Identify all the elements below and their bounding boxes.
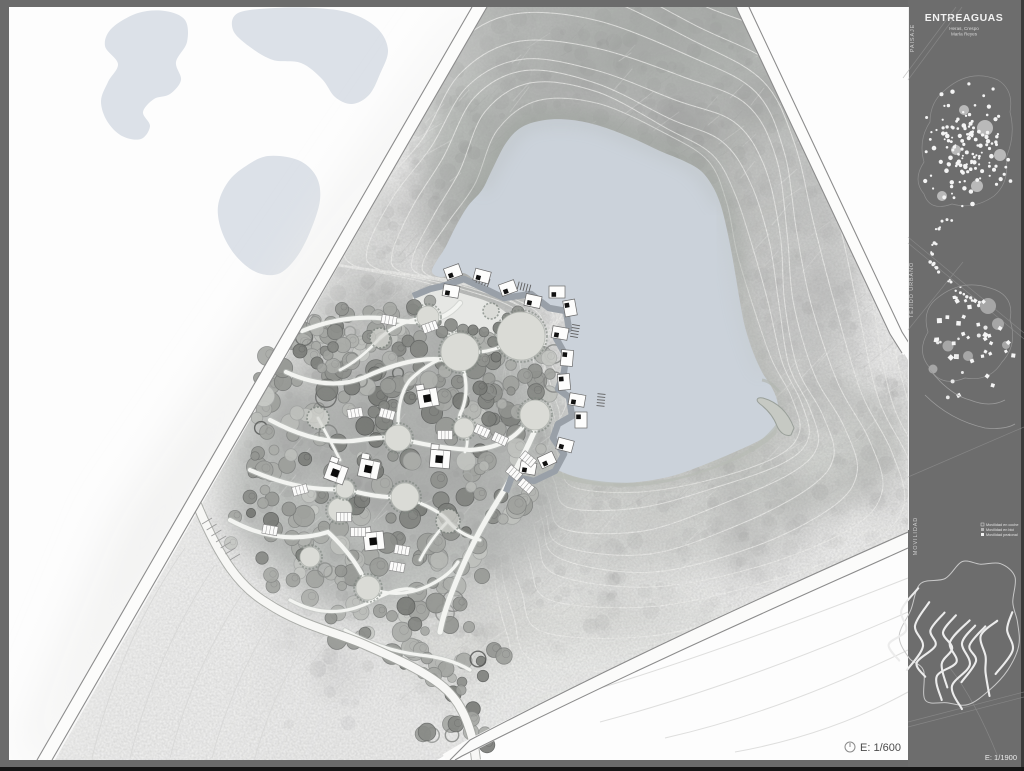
svg-text:Movilidad peatonal: Movilidad peatonal bbox=[986, 533, 1018, 537]
svg-text:TEJIDO URBANO: TEJIDO URBANO bbox=[909, 262, 915, 318]
svg-text:E: 1/1900: E: 1/1900 bbox=[985, 753, 1017, 762]
svg-text:Movilidad en bici: Movilidad en bici bbox=[986, 528, 1014, 532]
svg-text:MOVILIDAD: MOVILIDAD bbox=[913, 517, 919, 555]
svg-text:E: 1/600: E: 1/600 bbox=[860, 742, 901, 754]
svg-text:ENTREAGUAS: ENTREAGUAS bbox=[925, 12, 1004, 24]
svg-text:María Reyes: María Reyes bbox=[951, 32, 978, 37]
svg-text:PAISAJE: PAISAJE bbox=[910, 24, 916, 53]
svg-text:Movilidad en coche: Movilidad en coche bbox=[986, 523, 1019, 527]
svg-text:Heras, Crespo: Heras, Crespo bbox=[949, 26, 979, 31]
